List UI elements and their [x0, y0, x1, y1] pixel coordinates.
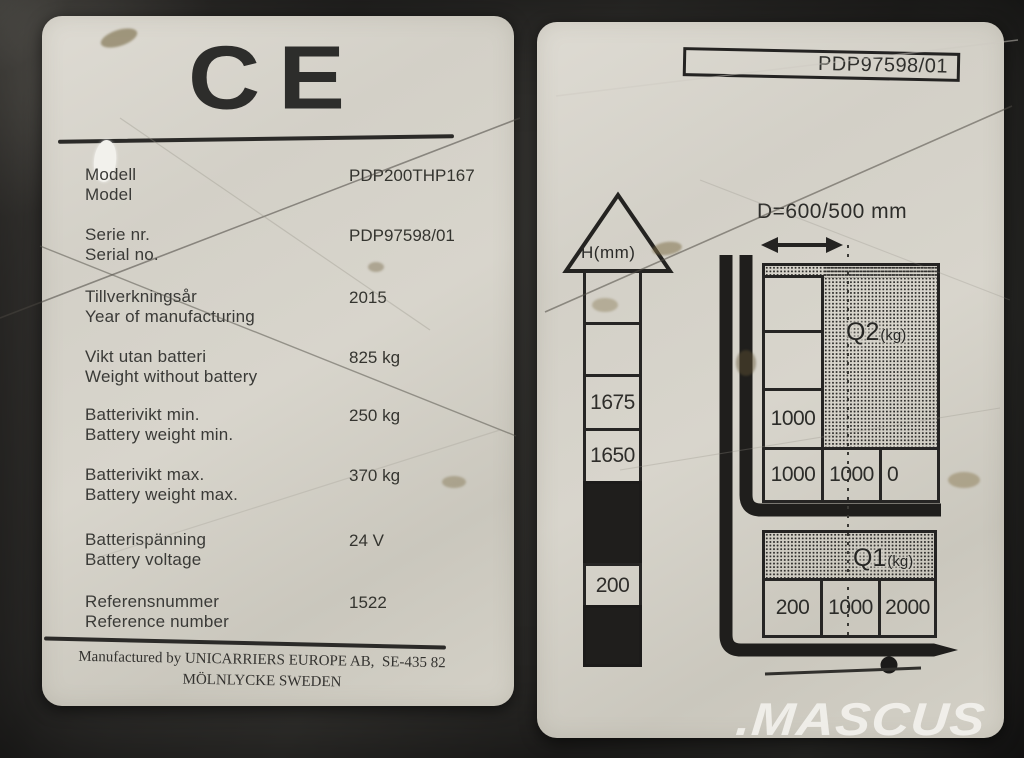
- ce-mark: CE: [188, 33, 363, 123]
- spec-label-en: Battery weight max.: [85, 485, 505, 505]
- height-cell: 1675: [583, 374, 642, 431]
- stain: [948, 472, 980, 488]
- spec-row-voltage: Batterispänning Battery voltage 24 V: [85, 530, 505, 570]
- spec-label-en: Year of manufacturing: [85, 307, 505, 327]
- stain: [368, 262, 384, 272]
- height-axis-label: H(mm): [581, 243, 635, 263]
- spec-row-battery-max: Batterivikt max. Battery weight max. 370…: [85, 465, 505, 505]
- stain: [442, 476, 466, 488]
- spec-value: PDP200THP167: [349, 166, 475, 186]
- stain: [592, 298, 618, 312]
- d-dimension-arrow-icon: [761, 237, 843, 253]
- spec-label-sv: Referensnummer: [85, 592, 505, 612]
- spec-label-en: Battery weight min.: [85, 425, 505, 445]
- spec-label-sv: Batterivikt min.: [85, 405, 505, 425]
- q2-cell: 1000: [762, 447, 824, 503]
- spec-row-year: Tillverkningsår Year of manufacturing 20…: [85, 287, 505, 327]
- spec-row-reference: Referensnummer Reference number 1522: [85, 592, 505, 632]
- q1-capacity-table: Q1(kg) 200 1000 2000: [762, 530, 937, 638]
- header-divider: [58, 134, 454, 144]
- spec-label-en: Serial no.: [85, 245, 505, 265]
- load-center-dimension-label: D=600/500 mm: [757, 200, 907, 224]
- height-cell-black: [583, 481, 642, 566]
- plate-number-box: PDP97598/01: [683, 47, 961, 82]
- q1-label: Q1(kg): [853, 544, 913, 573]
- spec-row-battery-min: Batterivikt min. Battery weight min. 250…: [85, 405, 505, 445]
- height-cell: 1650: [583, 428, 642, 484]
- spec-label-en: Weight without battery: [85, 367, 505, 387]
- spec-label-sv: Vikt utan batteri: [85, 347, 505, 367]
- spec-value: 2015: [349, 288, 387, 308]
- q1-cell: 200: [762, 578, 823, 638]
- q2-capacity-table: Q2(kg) 1000 1000 1000 0: [762, 263, 940, 503]
- spec-value: PDP97598/01: [349, 226, 455, 246]
- q2-cell: 1000: [762, 388, 824, 450]
- spec-label-en: Model: [85, 185, 505, 205]
- stain: [736, 350, 756, 376]
- spec-value: 1522: [349, 593, 387, 613]
- height-cell-black: [583, 605, 642, 667]
- q1-cell: 1000: [820, 578, 881, 638]
- q1-cell: 2000: [878, 578, 937, 638]
- height-cell: 200: [583, 563, 642, 608]
- height-scale-column: 1675 1650 200: [583, 270, 642, 667]
- q2-cell: 0: [879, 447, 940, 503]
- spec-row-serial: Serie nr. Serial no. PDP97598/01: [85, 225, 505, 265]
- spec-label-en: Battery voltage: [85, 550, 505, 570]
- spec-row-weight: Vikt utan batteri Weight without battery…: [85, 347, 505, 387]
- q2-cell: [762, 275, 824, 333]
- q2-cell: 1000: [821, 447, 882, 503]
- spec-value: 370 kg: [349, 466, 400, 486]
- q1-hatch-area: Q1(kg): [765, 533, 934, 581]
- spec-value: 24 V: [349, 531, 384, 551]
- wheel-icon: [881, 657, 898, 674]
- spec-value: 250 kg: [349, 406, 400, 426]
- spec-value: 825 kg: [349, 348, 400, 368]
- spec-label-sv: Tillverkningsår: [85, 287, 505, 307]
- spec-row-model: Modell Model PDP200THP167: [85, 165, 505, 205]
- mascus-watermark: .MASCUS: [734, 692, 988, 746]
- q2-cell: [762, 330, 824, 391]
- right-capacity-plate: PDP97598/01 D=600/500 mm H(mm) 1675 1650…: [537, 22, 1004, 738]
- q2-label: Q2(kg): [846, 318, 906, 347]
- left-nameplate: CE Modell Model PDP200THP167 Serie nr. S…: [42, 16, 514, 706]
- plate-number: PDP97598/01: [818, 53, 949, 79]
- height-cell: [583, 322, 642, 377]
- fork-tip: [934, 644, 958, 657]
- ground-line: [765, 668, 921, 674]
- height-cell: [583, 270, 642, 325]
- spec-label-en: Reference number: [85, 612, 505, 632]
- q2-hatch-area: Q2(kg): [824, 266, 937, 447]
- spec-label-sv: Batterispänning: [85, 530, 505, 550]
